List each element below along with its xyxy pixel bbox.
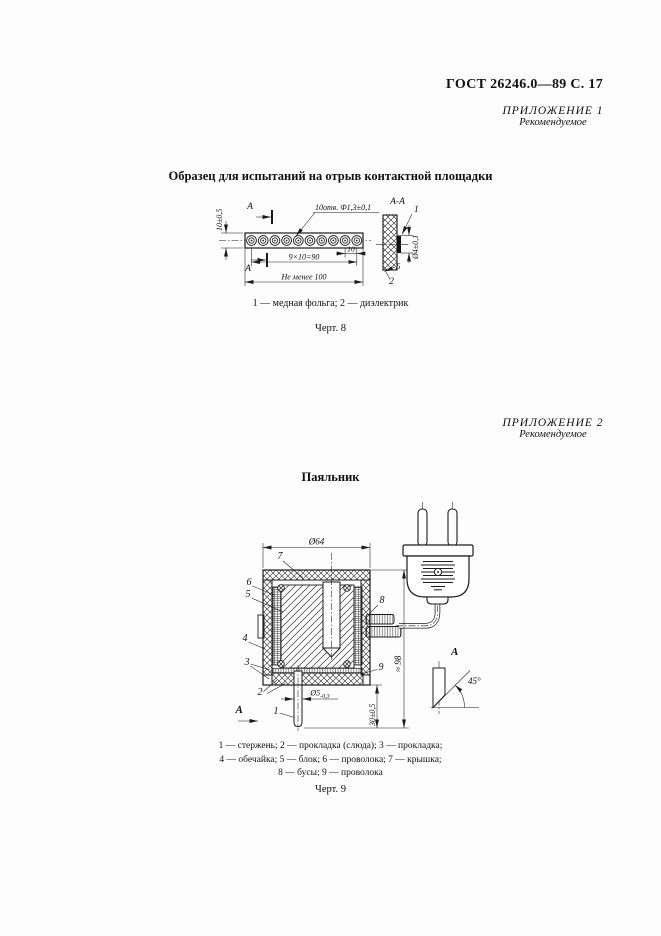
appendix-2-title: ПРИЛОЖЕНИЕ 2	[498, 417, 608, 429]
detail-view-a: А 45°	[431, 646, 481, 714]
callout-foil: 1	[414, 205, 419, 215]
block-part	[281, 585, 354, 668]
wire-winding-right	[354, 587, 362, 665]
figure8-caption: Черт. 8	[0, 323, 661, 334]
appendix-2-block: ПРИЛОЖЕНИЕ 2 Рекомендуемое	[498, 417, 608, 440]
figure9-legend-line1: 1 — стержень; 2 — прокладка (слюда); 3 —…	[0, 740, 661, 754]
callout-8: 8	[380, 595, 385, 606]
dim-rod-length-label: 30±0,5	[368, 704, 377, 727]
plug-prong-left	[418, 509, 427, 546]
section-view-label: А-А	[389, 197, 405, 207]
dim-overall-label: ≈ 98	[393, 655, 403, 672]
callout-7: 7	[278, 551, 284, 562]
plug	[403, 502, 473, 604]
view-arrow: А	[235, 704, 259, 721]
figure9-legend-line2: 4 — обечайка; 5 — блок; 6 — проволока; 7…	[0, 754, 661, 768]
plug-prong-right	[448, 509, 457, 546]
cord-tube-inner	[399, 602, 438, 626]
dim-rod-diameter-label: Ø5-0,3	[309, 689, 329, 701]
beads-lower	[366, 627, 401, 638]
figure9-caption: Черт. 9	[0, 784, 661, 795]
dim-strip-height-label: 10±0,5	[215, 209, 224, 231]
figure9-title: Паяльник	[0, 470, 661, 485]
dielectric-bar	[383, 215, 397, 270]
callout-1: 1	[274, 706, 279, 717]
dim-rod-length-30: 30±0,5	[365, 685, 382, 728]
plug-neck	[427, 597, 448, 604]
plug-body	[407, 556, 469, 597]
figure9-drawing: Ø64 ≈ 98 30±0,5 Ø5-0,3 7 6 5 4	[225, 495, 485, 737]
dim-pitch-total-label: 9×10=90	[289, 253, 320, 262]
wire-winding-left	[273, 587, 281, 665]
mica-gasket	[273, 668, 362, 672]
document-page: ГОСТ 26246.0—89 С. 17 ПРИЛОЖЕНИЕ 1 Реком…	[0, 0, 661, 936]
plug-flange	[403, 545, 473, 556]
detail-view-label: А	[450, 646, 458, 658]
figure8-drawing: 10±0,5 А А 10отв. Ф1,3±0,1 10	[205, 190, 450, 292]
callout-4: 4	[243, 633, 248, 644]
figure8-legend: 1 — медная фольга; 2 — диэлектрик	[0, 298, 661, 309]
appendix-1-title: ПРИЛОЖЕНИЕ 1	[498, 105, 608, 117]
dim-pitch-label: 10	[347, 245, 355, 254]
dim-strip-height: 10±0,5	[215, 209, 243, 260]
callout-3: 3	[244, 657, 250, 668]
callout-6: 6	[247, 577, 252, 588]
callout-9: 9	[379, 662, 384, 673]
figure8-title: Образец для испытаний на отрыв контактно…	[0, 169, 661, 184]
callout-dielectric: 2	[389, 277, 394, 287]
dim-total-label: Не менее 100	[280, 273, 326, 282]
section-view: А-А 1 Ø4±0,1	[376, 197, 420, 270]
gasket-bottom	[272, 673, 363, 685]
appendix-1-subtitle: Рекомендуемое	[498, 117, 608, 128]
iron-body	[258, 553, 370, 731]
beads-upper	[366, 615, 394, 625]
figure9-legend: 1 — стержень; 2 — прокладка (слюда); 3 —…	[0, 740, 661, 781]
section-mark-top-label: А	[246, 202, 253, 212]
cover-part	[263, 570, 370, 580]
callout-dielectric-leader	[386, 271, 391, 280]
dim-rod-diameter-5: Ø5-0,3	[281, 689, 338, 701]
appendix-2-subtitle: Рекомендуемое	[498, 429, 608, 440]
callout-2: 2	[258, 687, 263, 698]
dim-diameter-label: Ø64	[308, 537, 325, 547]
holes-label: 10отв. Ф1,3±0,1	[315, 203, 371, 212]
copper-foil	[397, 236, 401, 254]
angle-label: 45°	[468, 676, 481, 686]
page-header: ГОСТ 26246.0—89 С. 17	[446, 77, 603, 93]
view-arrow-label: А	[235, 704, 243, 716]
dim-pad-label: Ø4±0,1	[411, 235, 420, 260]
holes-callout: 10отв. Ф1,3±0,1	[296, 203, 379, 236]
figure9-legend-line3: 8 — бусы; 9 — проволока	[0, 767, 661, 781]
appendix-1-block: ПРИЛОЖЕНИЕ 1 Рекомендуемое	[498, 105, 608, 128]
callout-5: 5	[246, 589, 251, 600]
